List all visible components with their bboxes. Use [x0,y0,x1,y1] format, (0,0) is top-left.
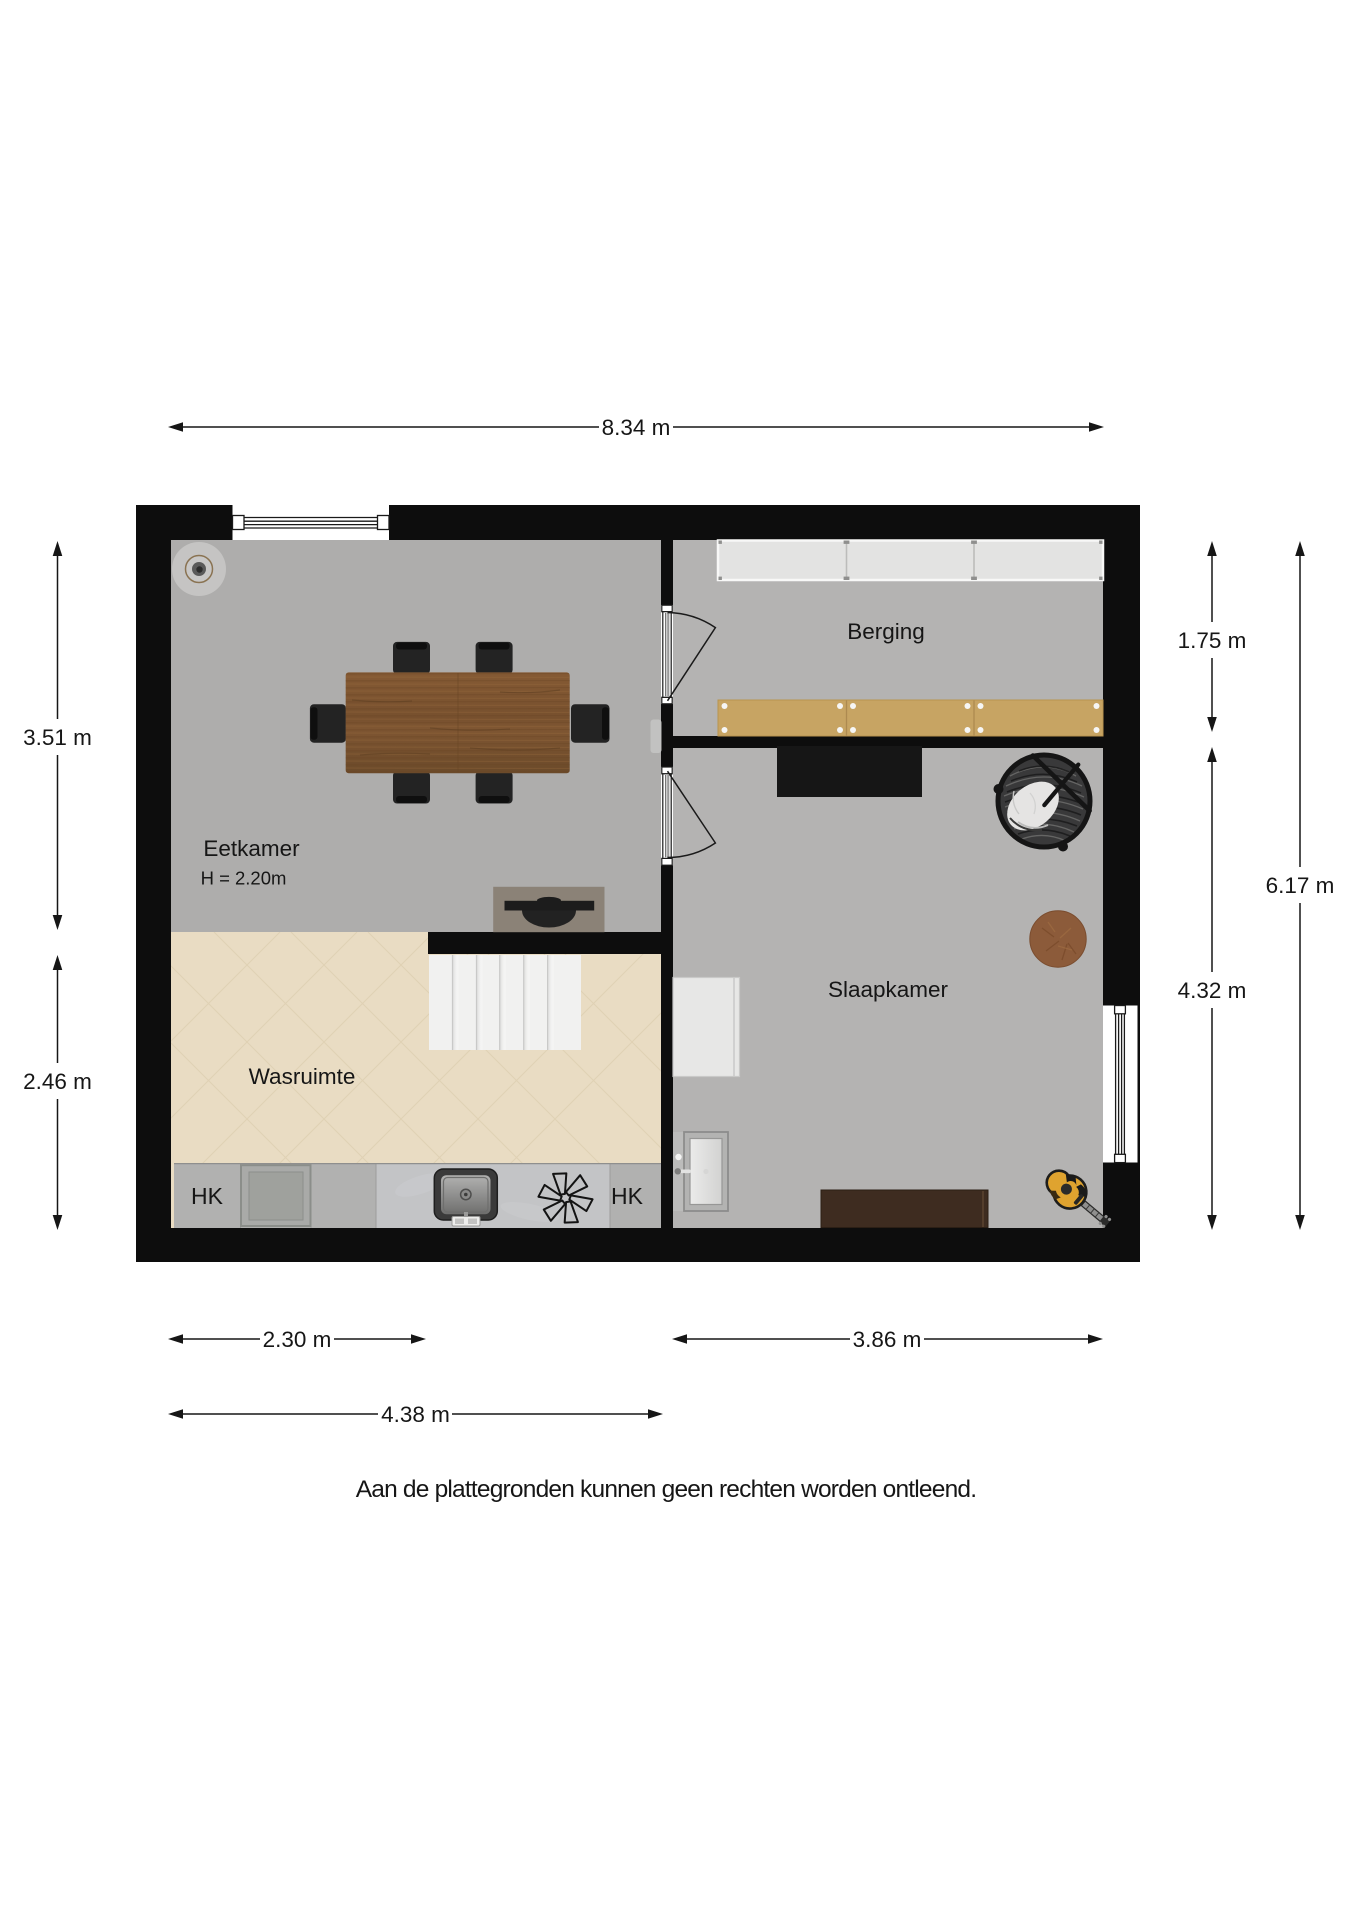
svg-text:3.51 m: 3.51 m [23,725,92,750]
svg-text:2.30 m: 2.30 m [263,1327,332,1352]
svg-text:HK: HK [611,1183,644,1209]
svg-text:4.38 m: 4.38 m [381,1402,450,1427]
svg-text:6.17 m: 6.17 m [1266,873,1335,898]
svg-text:H = 2.20m: H = 2.20m [201,868,287,889]
svg-text:Berging: Berging [847,619,925,644]
svg-text:Aan de plattegronden kunnen ge: Aan de plattegronden kunnen geen rechten… [356,1476,977,1503]
svg-text:2.46 m: 2.46 m [23,1069,92,1094]
svg-text:Wasruimte: Wasruimte [249,1064,356,1089]
svg-text:3.86 m: 3.86 m [853,1327,922,1352]
svg-text:Eetkamer: Eetkamer [203,836,300,861]
svg-text:4.32 m: 4.32 m [1178,978,1247,1003]
svg-text:1.75 m: 1.75 m [1178,628,1247,653]
svg-text:8.34 m: 8.34 m [602,415,671,440]
svg-text:Slaapkamer: Slaapkamer [828,977,949,1002]
svg-text:HK: HK [191,1183,224,1209]
